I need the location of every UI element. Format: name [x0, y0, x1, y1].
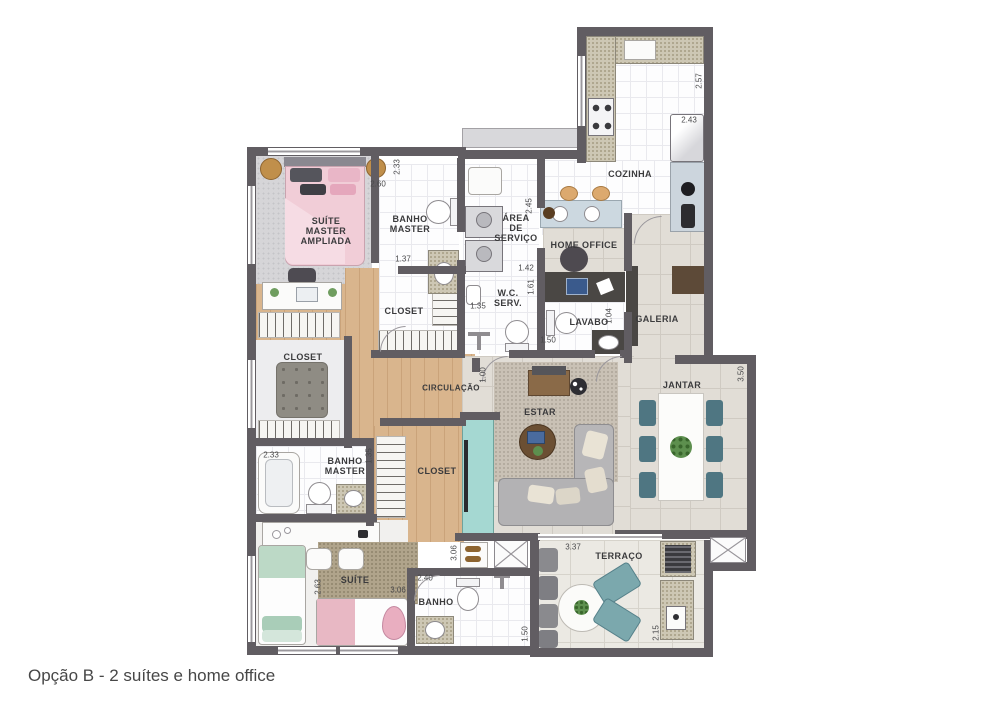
room-label-circulacao: CIRCULAÇÃO [422, 385, 480, 394]
wall [675, 355, 756, 364]
toilet-tank [546, 310, 555, 336]
coffee-table-laptop [527, 431, 545, 444]
nightstand [260, 158, 282, 180]
sofa-pillow [555, 487, 581, 505]
bench-cushion [538, 604, 558, 628]
washer-door [476, 212, 492, 228]
bench-cushion [538, 548, 558, 572]
bed-pillow [300, 184, 326, 195]
desk-plant [328, 288, 337, 297]
bar-stool [560, 186, 578, 201]
dim-label: 2.45 [525, 198, 534, 214]
terrace-appliance-knob [673, 614, 679, 620]
sofa-pillow [527, 484, 555, 504]
dim-label: 1.04 [605, 308, 614, 324]
dim-label: 2.57 [695, 73, 704, 89]
bar-sink [584, 206, 600, 222]
stove-icon [588, 98, 614, 136]
room-label-closet-central: CLOSET [385, 306, 424, 316]
window [278, 647, 336, 654]
bed-single-mint-pillow [262, 630, 302, 642]
dim-label: 1.35 [470, 302, 486, 311]
bed-single-mint-blanket [259, 546, 305, 578]
dim-label: 1.35 [365, 448, 374, 464]
room-label-jantar: JANTAR [663, 380, 701, 390]
wall [577, 27, 713, 36]
desk-plant [270, 288, 279, 297]
window [248, 360, 255, 428]
dim-label: 2.63 [314, 579, 323, 595]
room-label-suite: SUÍTE [341, 575, 370, 585]
dim-label: 2.40 [417, 574, 433, 583]
suite-pouf [306, 548, 332, 570]
bed-single-pink-blanket [317, 599, 355, 645]
room-label-cozinha: COZINHA [608, 169, 652, 179]
room-label-lavabo: LAVABO [569, 317, 608, 327]
room-label-area-servico: ÁREA DE SERVIÇO [494, 213, 537, 243]
wardrobe-rail [258, 312, 340, 338]
dim-label: 1.50 [521, 626, 530, 642]
microwave-icon [681, 204, 695, 228]
wall [460, 412, 500, 420]
plan-caption: Opção B - 2 suítes e home office [28, 666, 275, 686]
bathtub-inner [265, 459, 293, 507]
toilet-icon [457, 587, 479, 611]
dim-label: 1.61 [527, 279, 536, 295]
bar-stool [592, 186, 610, 201]
desk-deco [284, 527, 291, 534]
kitchen-sink [624, 40, 656, 60]
dim-label: 2.33 [263, 451, 279, 460]
dim-label: 3.37 [565, 543, 581, 552]
lavabo-basin [598, 335, 619, 350]
wall [624, 312, 632, 363]
toilet-icon [505, 320, 529, 344]
wall [398, 266, 466, 274]
window [248, 186, 255, 264]
room-label-suite-master: SUÍTE MASTER AMPLIADA [301, 216, 352, 246]
room-label-wc-serv: W.C. SERV. [494, 288, 522, 308]
bench-cushion [538, 630, 558, 648]
galeria-sideboard [672, 266, 704, 294]
teal-panel-door [464, 440, 468, 512]
wall [704, 27, 713, 233]
toilet-tank [306, 504, 332, 514]
fruit-bowl [543, 207, 555, 219]
room-label-banho-master-bottom: BANHO MASTER [325, 456, 365, 476]
window [340, 647, 398, 654]
window [268, 148, 360, 155]
room-label-banho-bottom: BANHO [419, 597, 454, 607]
toilet-tank [456, 578, 480, 587]
window [578, 56, 585, 126]
wall [530, 538, 539, 656]
sliding-door [538, 534, 662, 540]
shower-icon [477, 336, 481, 350]
floorplan-canvas: SUÍTE MASTER AMPLIADA BANHO MASTER ÁREA … [0, 0, 1000, 706]
wardrobe-rail [376, 436, 406, 518]
closet-ottoman [276, 362, 328, 418]
window [248, 556, 255, 642]
cooktop-icon [681, 182, 695, 196]
centerpiece-plant [670, 436, 692, 458]
dryer-door [476, 246, 492, 262]
dim-label: 3.50 [737, 366, 746, 382]
terrace-plant [574, 600, 589, 615]
dim-label: 2.60 [370, 180, 386, 189]
kitchen-cabinet-row [462, 128, 578, 148]
elevator-shaft [710, 537, 746, 563]
room-label-banho-master-top: BANHO MASTER [390, 214, 430, 234]
wall [380, 418, 466, 426]
dining-chair [706, 400, 723, 426]
wall [537, 158, 545, 208]
dining-chair [639, 472, 656, 498]
dining-chair [639, 436, 656, 462]
office-laptop [566, 278, 588, 295]
wall [247, 438, 374, 446]
suite-pouf [338, 548, 364, 570]
wall [624, 213, 632, 271]
dim-label: 2.43 [681, 116, 697, 125]
dim-label: 3.06 [450, 545, 459, 561]
bed-pillow [290, 168, 322, 182]
suite-rug [318, 542, 418, 604]
room-label-home-office: HOME OFFICE [551, 240, 618, 250]
dining-chair [706, 436, 723, 462]
room-label-terraco: TERRAÇO [595, 551, 642, 561]
wall [458, 150, 585, 159]
grill-icon [665, 545, 691, 573]
wall [457, 158, 465, 232]
dim-label: 1.37 [395, 255, 411, 264]
wall [457, 260, 465, 358]
wall [704, 233, 713, 363]
desk-deco [358, 530, 368, 538]
wall [344, 336, 352, 448]
toilet-icon [308, 482, 331, 505]
shoe-icon [465, 546, 481, 552]
duct-shaft [494, 540, 528, 568]
wall [371, 147, 379, 263]
wall [537, 350, 595, 358]
wall [247, 514, 377, 522]
dining-chair [639, 400, 656, 426]
room-label-closet-left: CLOSET [284, 352, 323, 362]
tv-icon [532, 366, 566, 375]
dim-label: 2.33 [393, 159, 402, 175]
bed-pillow [328, 168, 360, 182]
room-label-estar: ESTAR [524, 407, 556, 417]
dim-label: 3.06 [390, 586, 406, 595]
papasan-chair [382, 606, 406, 640]
sink-basin [344, 490, 363, 507]
speaker-icon [570, 378, 587, 395]
desk-laptop [296, 287, 318, 302]
bench-cushion [538, 576, 558, 600]
laundry-tank [468, 167, 502, 195]
dining-chair [706, 472, 723, 498]
shoe-icon [465, 556, 481, 562]
dim-label: 2.15 [652, 625, 661, 641]
room-label-closet-bottom: CLOSET [418, 466, 457, 476]
coffee-table-plant [533, 446, 543, 456]
sink-basin [425, 621, 445, 639]
dim-label: 1.00 [479, 367, 488, 383]
dim-label: 1.42 [518, 264, 534, 273]
wall [530, 648, 713, 657]
bed-pillow [330, 184, 356, 195]
desk-deco [272, 530, 281, 539]
dim-label: 1.50 [540, 336, 556, 345]
room-label-galeria: GALERIA [635, 314, 678, 324]
wall [407, 568, 415, 655]
wall [455, 533, 540, 541]
